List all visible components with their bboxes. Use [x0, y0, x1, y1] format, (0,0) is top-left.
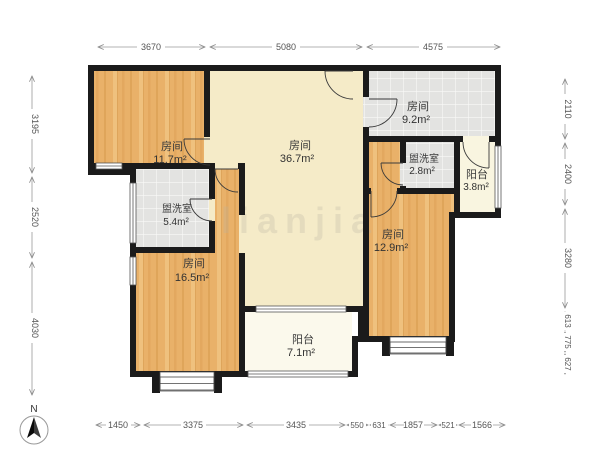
dim-bottom-5: 1857 — [403, 420, 423, 430]
dim-top-2: 4575 — [423, 42, 443, 52]
dim-right-0: 2110 — [563, 99, 573, 118]
bay-window-room-16-5 — [160, 372, 214, 391]
floor-room-11-7 — [94, 71, 204, 163]
dim-right-3: 613 — [563, 314, 572, 328]
room-1-name: 房间 — [289, 139, 311, 152]
dim-left-0: 3195 — [30, 114, 40, 134]
dim-bottom-2: 3435 — [286, 420, 306, 430]
bay-window-room-12-9 — [390, 337, 446, 354]
room-4-name: 阳台 — [466, 167, 488, 181]
dim-right-5: 627 — [563, 357, 572, 371]
compass: N — [20, 404, 48, 444]
floor-washroom-2-8 — [400, 142, 454, 188]
room-5-area: 5.4m² — [163, 217, 189, 228]
compass-label: N — [30, 404, 37, 415]
room-2-name: 房间 — [407, 100, 429, 113]
floor-plan-image: lianjia — [0, 0, 600, 450]
window-balcony-7-1 — [248, 371, 348, 377]
room-2-area: 9.2m² — [402, 114, 430, 126]
room-5-name: 盥洗室 — [162, 202, 192, 215]
window-balcony-3-8 — [495, 146, 501, 208]
sliding-window-living-balcony — [256, 306, 346, 312]
room-6-area: 16.5m² — [175, 272, 210, 284]
room-1-area: 36.7m² — [280, 153, 315, 165]
room-3-name: 盥洗室 — [409, 152, 439, 165]
window-washroom-5-4 — [130, 183, 136, 243]
room-3-area: 2.8m² — [409, 166, 435, 177]
dim-left-2: 4030 — [30, 318, 40, 338]
dim-bottom-7: 1566 — [472, 420, 492, 430]
window-room-11-7 — [96, 163, 122, 169]
dim-left-1: 2520 — [30, 207, 40, 227]
room-7-area: 12.9m² — [374, 242, 409, 254]
dim-bottom-3: 550 — [350, 421, 364, 430]
window-room-16-5-left — [130, 257, 136, 285]
room-0-name: 房间 — [161, 140, 183, 153]
dim-bottom-0: 1450 — [108, 420, 128, 430]
dim-bottom-6: 521 — [441, 421, 455, 430]
room-8-name: 阳台 — [292, 332, 314, 346]
dim-bottom-1: 3375 — [183, 420, 203, 430]
dim-top-0: 3670 — [141, 42, 161, 52]
room-0-area: 11.7m² — [153, 154, 187, 166]
floor-plan-svg: lianjia — [0, 0, 600, 450]
dim-right-2: 3280 — [563, 248, 573, 268]
dim-right-4: 775 — [563, 335, 572, 349]
dim-top-1: 5080 — [276, 42, 296, 52]
floor-room-9-2 — [363, 71, 495, 136]
room-8-area: 7.1m² — [287, 347, 315, 359]
room-6-name: 房间 — [183, 257, 205, 270]
room-4-area: 3.8m² — [463, 182, 489, 193]
dim-bottom-4: 631 — [372, 421, 386, 430]
dim-right-1: 2400 — [563, 164, 573, 184]
room-7-name: 房间 — [382, 228, 404, 241]
